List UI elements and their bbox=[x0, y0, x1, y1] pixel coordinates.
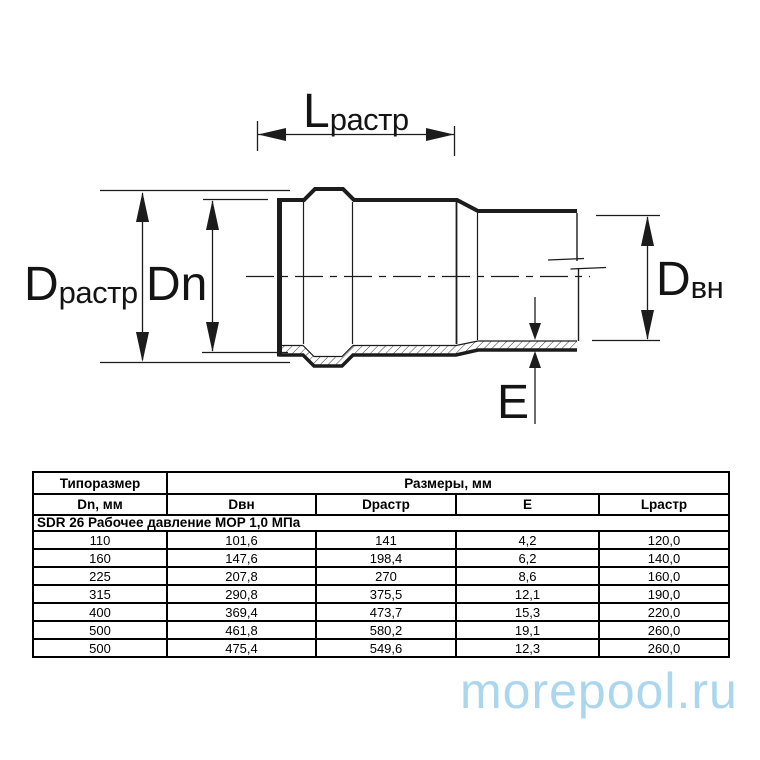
table-row: 500 461,8 580,2 19,1 260,0 bbox=[33, 621, 729, 639]
table-row: 110 101,6 141 4,2 120,0 bbox=[33, 531, 729, 549]
label-dvn-main: D bbox=[656, 253, 691, 306]
cell-drastr: 141 bbox=[316, 531, 456, 549]
pipe-socket-diagram: Lрастр Dрастр Dn Dвн E bbox=[0, 0, 760, 460]
label-lrastr-main: L bbox=[303, 85, 330, 138]
cell-dn: 315 bbox=[33, 585, 167, 603]
pipe-drawing bbox=[0, 0, 760, 460]
cell-dn: 500 bbox=[33, 621, 167, 639]
cell-dvn: 147,6 bbox=[167, 549, 316, 567]
cell-lrastr: 190,0 bbox=[599, 585, 729, 603]
subheader-drastr: Dрастр bbox=[316, 494, 456, 515]
cell-dvn: 461,8 bbox=[167, 621, 316, 639]
dimensions-table: Типоразмер Размеры, мм Dn, мм Dвн Dрастр… bbox=[32, 471, 730, 658]
cell-drastr: 198,4 bbox=[316, 549, 456, 567]
cell-e: 15,3 bbox=[456, 603, 599, 621]
cell-e: 19,1 bbox=[456, 621, 599, 639]
watermark-morepool: morepool.ru bbox=[460, 666, 738, 716]
dim-dvn bbox=[592, 216, 660, 341]
label-dn: Dn bbox=[146, 261, 207, 309]
header-cell-size: Типоразмер bbox=[33, 472, 167, 494]
label-e-main: E bbox=[497, 376, 529, 429]
label-dn-main: Dn bbox=[146, 258, 207, 311]
label-drastr-main: D bbox=[24, 258, 59, 311]
cell-e: 12,3 bbox=[456, 639, 599, 657]
subheader-dn: Dn, мм bbox=[33, 494, 167, 515]
catalog-page: { "diagram": { "labels": { "l_rastr": {"… bbox=[0, 0, 760, 760]
label-lrastr: Lрастр bbox=[303, 88, 409, 136]
cell-dn: 500 bbox=[33, 639, 167, 657]
subheader-dvn: Dвн bbox=[167, 494, 316, 515]
cell-dn: 225 bbox=[33, 567, 167, 585]
cell-lrastr: 220,0 bbox=[599, 603, 729, 621]
cell-e: 8,6 bbox=[456, 567, 599, 585]
cell-dvn: 207,8 bbox=[167, 567, 316, 585]
subheader-lrastr: Lрастр bbox=[599, 494, 729, 515]
table-row-section: SDR 26 Рабочее давление MOP 1,0 МПа bbox=[33, 515, 729, 531]
table-row: 160 147,6 198,4 6,2 140,0 bbox=[33, 549, 729, 567]
cell-lrastr: 140,0 bbox=[599, 549, 729, 567]
cell-drastr: 580,2 bbox=[316, 621, 456, 639]
label-drastr-sub: растр bbox=[59, 275, 138, 310]
cell-dn: 160 bbox=[33, 549, 167, 567]
header-cell-dimensions: Размеры, мм bbox=[167, 472, 729, 494]
inner-feature-lines bbox=[304, 202, 478, 344]
label-dvn-sub: вн bbox=[691, 270, 724, 305]
cell-dvn: 475,4 bbox=[167, 639, 316, 657]
pipe-top-profile bbox=[279, 189, 577, 211]
label-e: E bbox=[497, 379, 529, 427]
cell-dvn: 369,4 bbox=[167, 603, 316, 621]
cell-lrastr: 120,0 bbox=[599, 531, 729, 549]
cell-dvn: 290,8 bbox=[167, 585, 316, 603]
dim-e bbox=[529, 297, 541, 424]
cell-dn: 400 bbox=[33, 603, 167, 621]
table-row: 400 369,4 473,7 15,3 220,0 bbox=[33, 603, 729, 621]
cell-lrastr: 160,0 bbox=[599, 567, 729, 585]
cell-drastr: 549,6 bbox=[316, 639, 456, 657]
table-row: 315 290,8 375,5 12,1 190,0 bbox=[33, 585, 729, 603]
cell-dvn: 101,6 bbox=[167, 531, 316, 549]
cell-drastr: 375,5 bbox=[316, 585, 456, 603]
table-row: 500 475,4 549,6 12,3 260,0 bbox=[33, 639, 729, 657]
cell-e: 6,2 bbox=[456, 549, 599, 567]
cell-e: 4,2 bbox=[456, 531, 599, 549]
cell-lrastr: 260,0 bbox=[599, 621, 729, 639]
label-dvn: Dвн bbox=[656, 256, 723, 304]
cell-dn: 110 bbox=[33, 531, 167, 549]
cell-lrastr: 260,0 bbox=[599, 639, 729, 657]
label-drastr: Dрастр bbox=[24, 261, 138, 309]
cell-drastr: 270 bbox=[316, 567, 456, 585]
cell-e: 12,1 bbox=[456, 585, 599, 603]
table-row: 225 207,8 270 8,6 160,0 bbox=[33, 567, 729, 585]
table-row-header: Типоразмер Размеры, мм bbox=[33, 472, 729, 494]
dim-dn bbox=[202, 200, 288, 353]
cell-drastr: 473,7 bbox=[316, 603, 456, 621]
subheader-e: E bbox=[456, 494, 599, 515]
section-title-sdr26: SDR 26 Рабочее давление MOP 1,0 МПа bbox=[33, 515, 729, 531]
label-lrastr-sub: растр bbox=[330, 102, 409, 137]
table-row-subheader: Dn, мм Dвн Dрастр E Lрастр bbox=[33, 494, 729, 515]
